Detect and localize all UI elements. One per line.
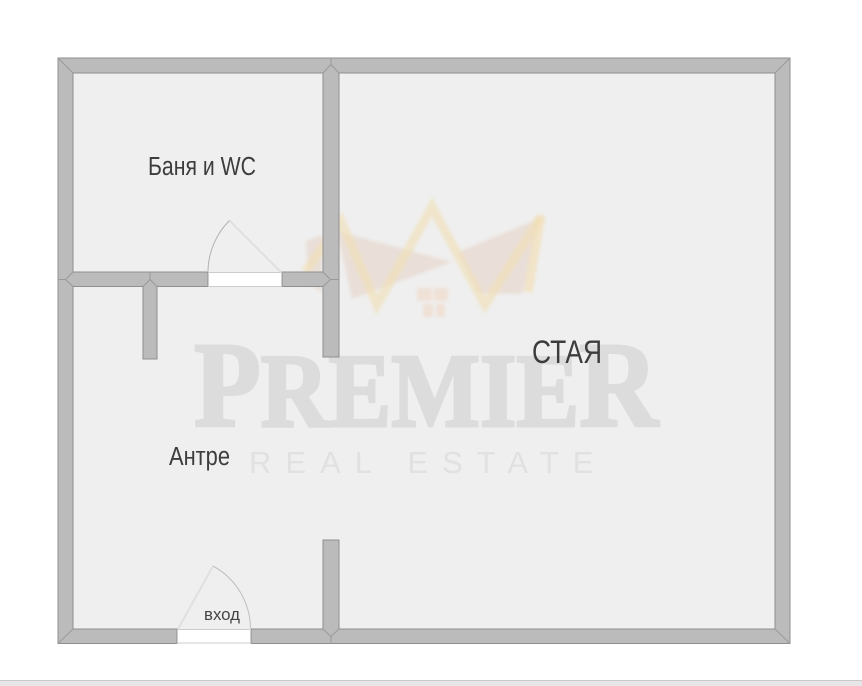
svg-text:Баня и WC: Баня и WC [148,153,256,181]
svg-text:REAL ESTATE: REAL ESTATE [249,445,607,480]
svg-text:Антре: Антре [169,443,230,471]
svg-text:СТАЯ: СТАЯ [532,334,602,370]
svg-text:вход: вход [204,605,240,624]
